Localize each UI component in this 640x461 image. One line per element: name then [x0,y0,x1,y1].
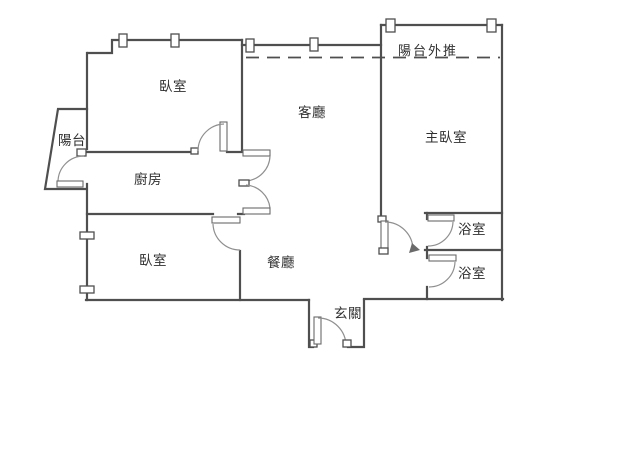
window-icon [310,38,318,51]
room-label-dining-room: 餐廳 [267,256,295,270]
window-symbols [80,19,496,293]
window-icon [487,19,496,32]
window-icon [119,34,127,47]
floor-plan-drawing [0,0,640,461]
room-label-balcony-extension: 陽台外推 [398,44,458,58]
room-label-living-room: 客廳 [298,106,326,120]
double-door-kitchen [239,150,270,214]
window-icon [386,19,395,32]
floor-plan-canvas: 臥室 客廳 主臥室 陽台外推 陽台 廚房 臥室 餐廳 玄關 浴室 浴室 [0,0,640,461]
window-icon [246,39,254,52]
exterior-walls [45,25,503,347]
door-bathroom2 [429,255,456,287]
door-bathroom1 [428,215,454,246]
room-label-bedroom1: 臥室 [159,80,187,94]
door-bedroom1 [191,122,227,154]
room-label-bathroom1: 浴室 [458,223,486,237]
door-master-bedroom [378,216,420,254]
window-icon [171,34,179,47]
door-entry [310,317,351,347]
window-icon [80,286,94,293]
window-icon [80,232,94,239]
room-label-balcony: 陽台 [58,134,86,148]
door-bedroom2 [212,217,240,250]
room-label-bathroom2: 浴室 [458,267,486,281]
room-label-entry: 玄關 [334,307,362,321]
room-label-bedroom2: 臥室 [139,254,167,268]
room-label-kitchen: 廚房 [134,173,162,187]
door-balcony [57,149,86,187]
room-label-master-bedroom: 主臥室 [425,131,467,145]
